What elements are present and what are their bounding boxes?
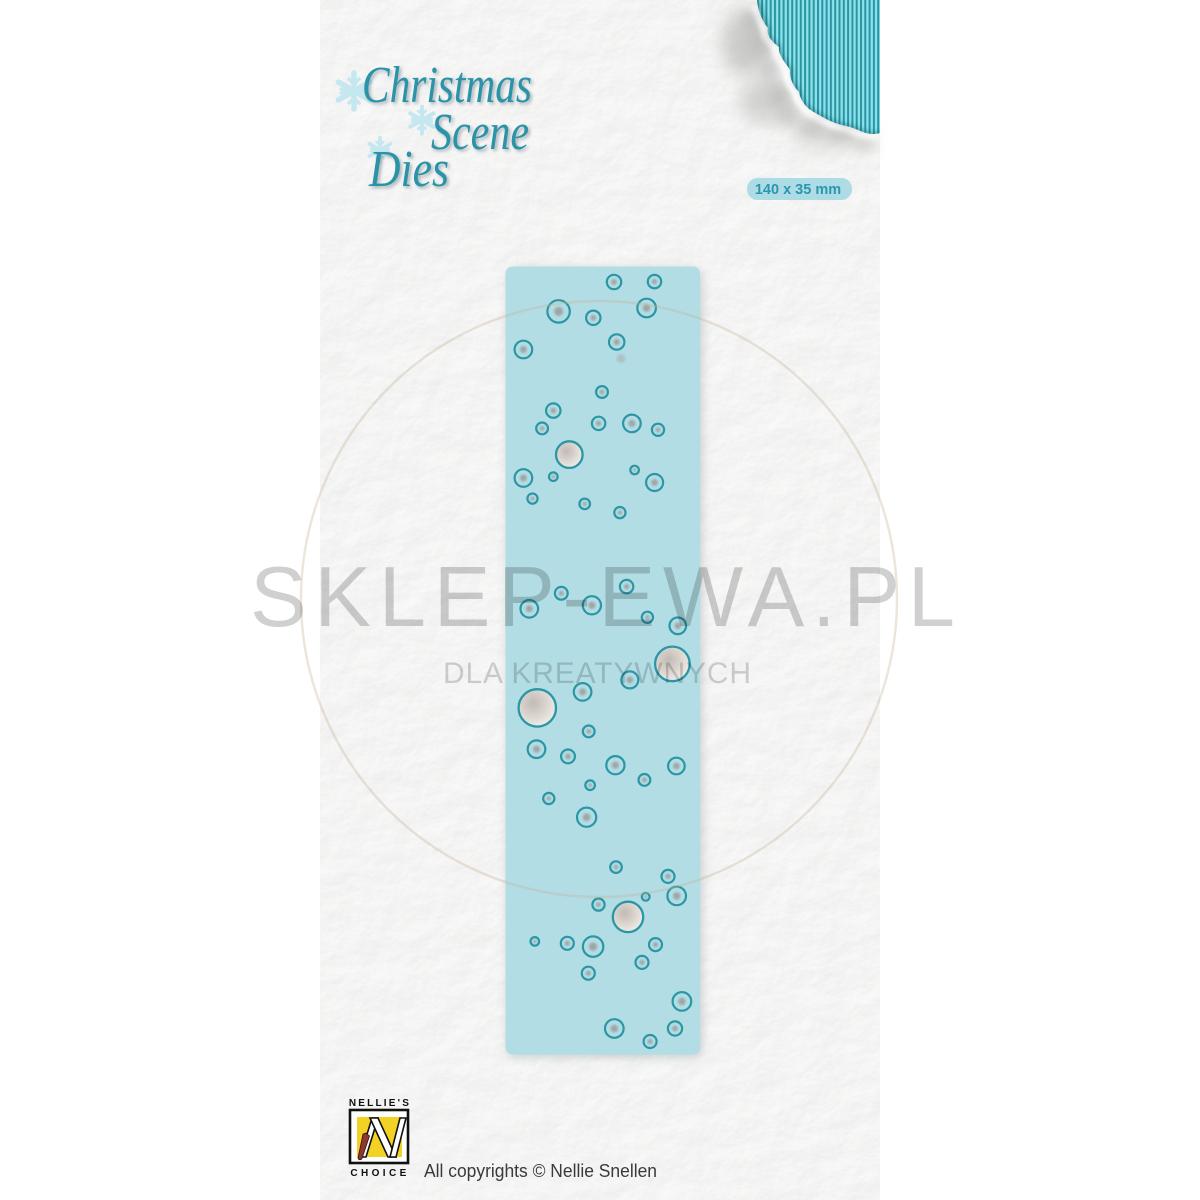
- svg-text:NELLIE'S: NELLIE'S: [349, 1098, 411, 1109]
- svg-text:SKLEP-EWA.PL: SKLEP-EWA.PL: [250, 550, 977, 645]
- svg-text:Dies: Dies: [368, 141, 449, 198]
- svg-text:DLA KREATYWNYCH: DLA KREATYWNYCH: [443, 657, 759, 690]
- svg-text:140 x 35 mm: 140 x 35 mm: [755, 182, 841, 198]
- svg-text:CHOICE: CHOICE: [350, 1168, 409, 1179]
- svg-text:All copyrights © Nellie Snelle: All copyrights © Nellie Snellen: [424, 1161, 657, 1181]
